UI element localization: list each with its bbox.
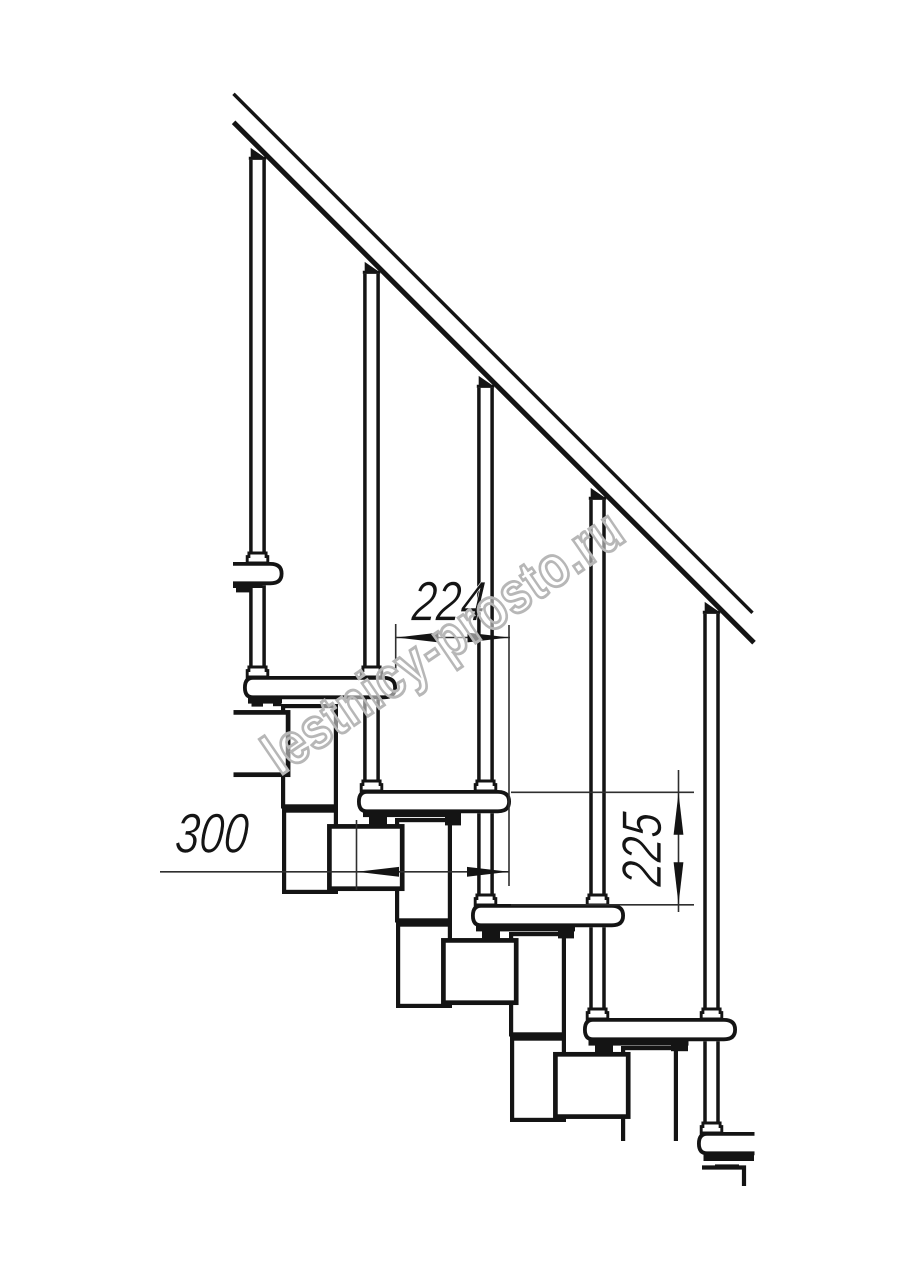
svg-text:300: 300 — [173, 801, 251, 864]
svg-text:225: 225 — [610, 809, 673, 889]
